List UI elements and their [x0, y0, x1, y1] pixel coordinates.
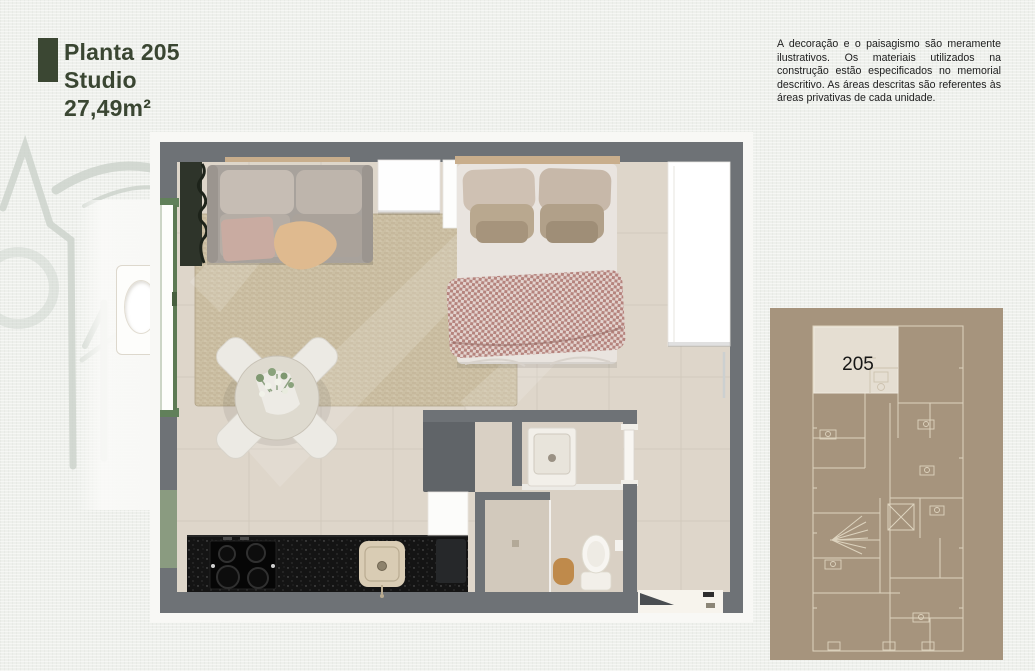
kitchen-counter	[187, 535, 468, 598]
floor-plan-svg	[150, 132, 753, 623]
entry-door	[638, 590, 723, 613]
page-title: Planta 205 Studio 27,49m²	[64, 38, 180, 122]
title-accent-bar	[38, 38, 58, 82]
page-header: Planta 205 Studio 27,49m²	[38, 38, 180, 122]
toilet	[581, 535, 611, 590]
wardrobe	[668, 162, 730, 347]
legal-disclaimer: A decoração e o paisagismo são meramente…	[777, 38, 1001, 106]
toilet-paper-holder	[615, 540, 624, 551]
bed-blanket	[446, 270, 626, 359]
counter-appliance	[436, 539, 466, 583]
unit-205-highlight: 205	[814, 327, 898, 393]
title-line-plan: Planta 205	[64, 38, 180, 66]
stool	[553, 558, 574, 585]
bed	[446, 156, 626, 368]
key-plan-panel: 205	[770, 308, 1003, 660]
bathroom-door	[624, 430, 634, 482]
window	[160, 198, 179, 417]
unit-205-label: 205	[842, 354, 874, 375]
brochure-page: Planta 205 Studio 27,49m² A decoração e …	[0, 0, 1035, 671]
base-cabinet	[428, 492, 468, 535]
green-panel	[160, 490, 177, 568]
floor-plan-render	[150, 132, 753, 623]
title-line-area: 27,49m²	[64, 94, 180, 122]
sofa	[207, 157, 373, 270]
shower	[475, 492, 550, 592]
title-line-type: Studio	[64, 66, 180, 94]
cooktop	[210, 541, 276, 589]
